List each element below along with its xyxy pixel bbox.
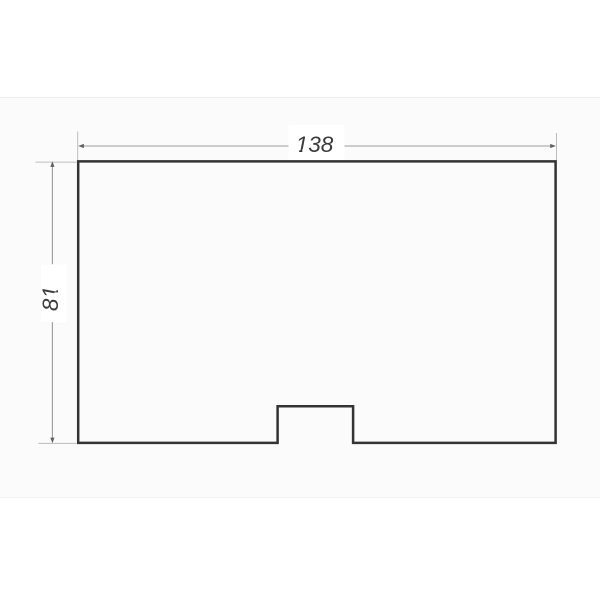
svg-text:138: 138 [296,132,334,157]
